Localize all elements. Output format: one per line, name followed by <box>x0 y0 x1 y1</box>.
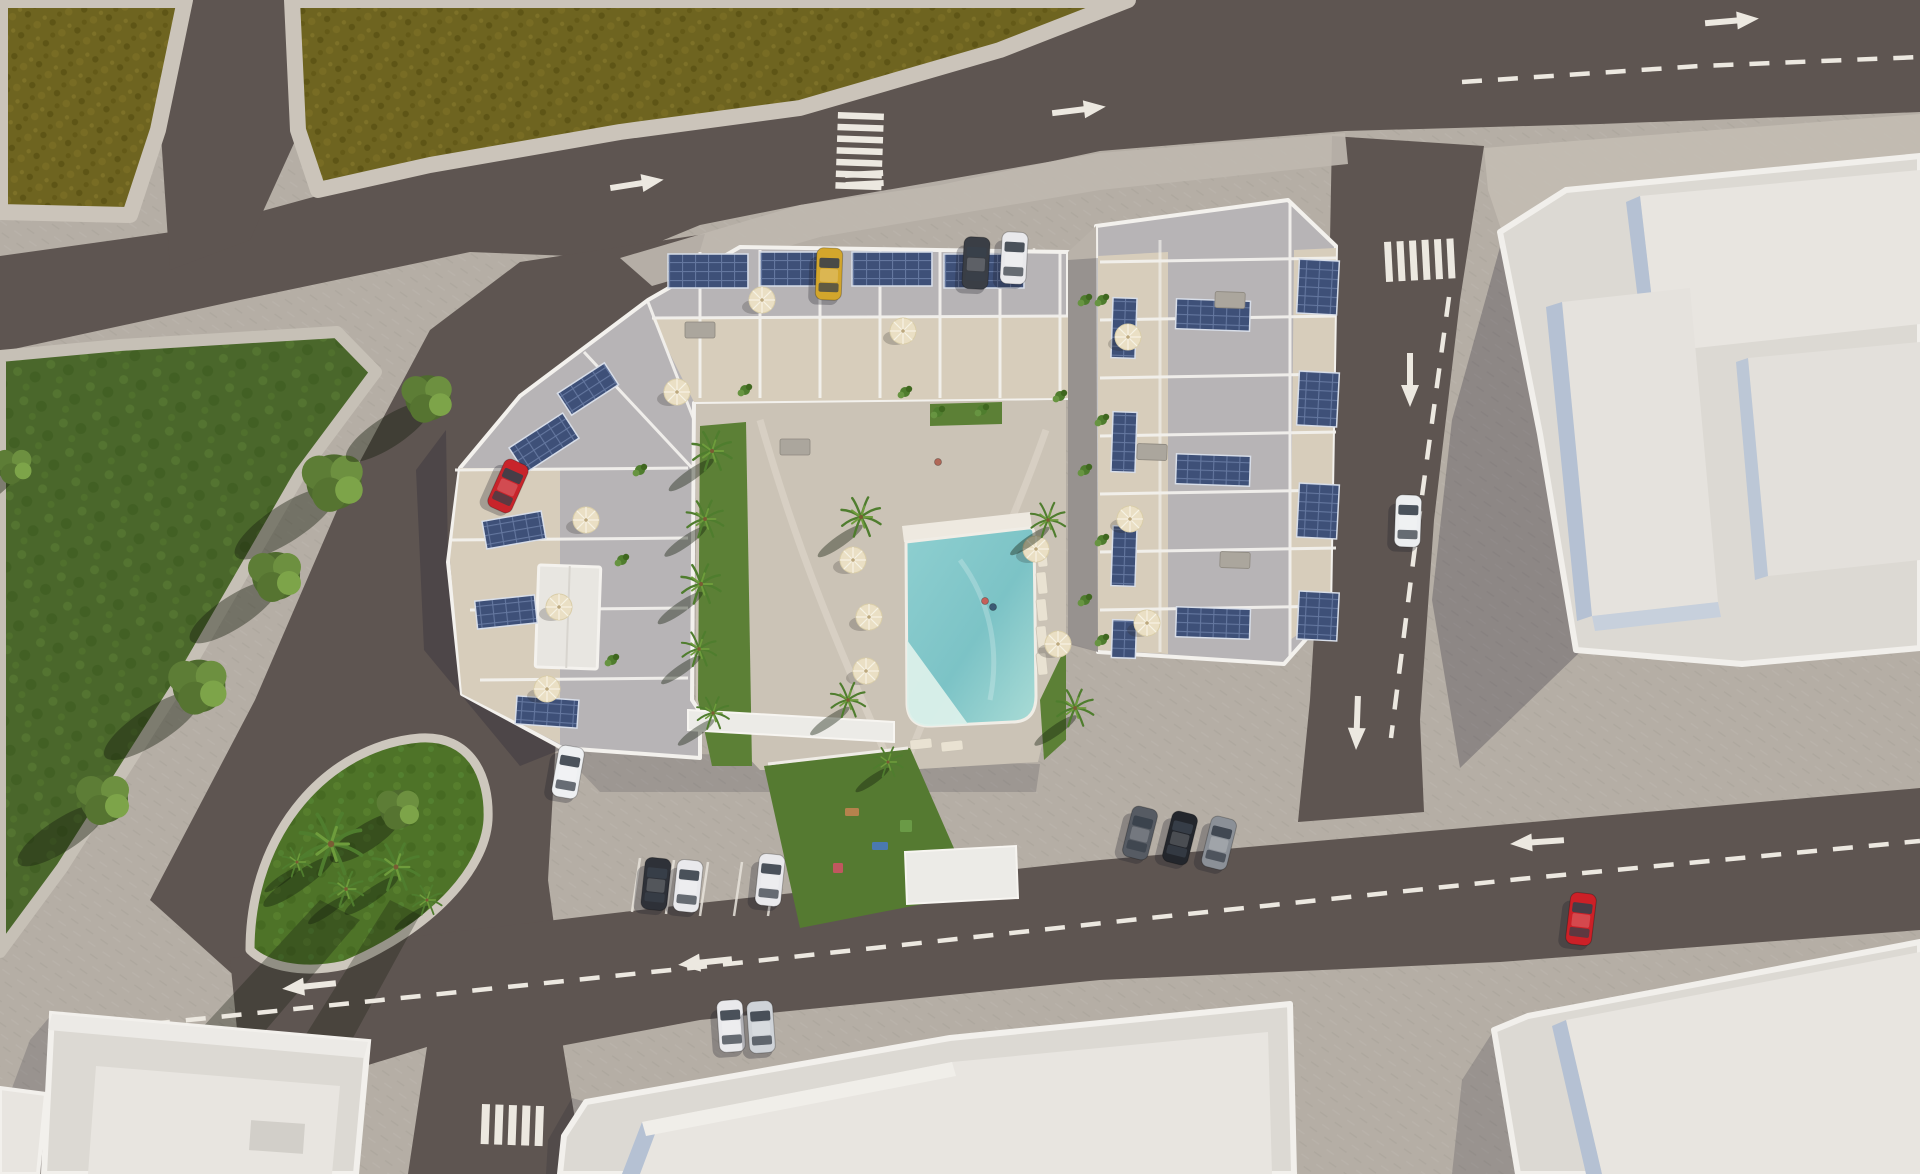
plant-leaf <box>1086 294 1092 300</box>
solar-panel-array <box>1297 483 1340 539</box>
solar-panel-array <box>1111 526 1137 587</box>
solar-panel <box>1175 607 1250 640</box>
car-rear-window <box>1397 530 1417 540</box>
pool-lounger <box>1036 599 1048 622</box>
solar-panel-array <box>1175 607 1250 640</box>
solar-panel <box>475 595 538 629</box>
complex-alley-shadow <box>1068 258 1098 652</box>
plant-leaf <box>1095 420 1102 427</box>
tree-canopy <box>400 805 419 824</box>
lounger <box>1036 599 1048 622</box>
parasol-pole <box>675 390 679 394</box>
solar-panel-array <box>1175 454 1250 487</box>
solar-panel <box>1111 412 1137 473</box>
solar-panel <box>852 252 932 286</box>
car-roof-highlight <box>722 1020 741 1034</box>
person <box>982 598 989 605</box>
car-roof-highlight <box>760 874 779 889</box>
car-windshield <box>761 863 782 875</box>
car-roof-highlight <box>1399 516 1417 530</box>
plant-leaf <box>633 470 640 477</box>
tree-canopy <box>200 681 226 707</box>
car-windshield <box>679 869 700 881</box>
parasol-pole <box>851 558 855 562</box>
plant-leaf <box>1095 540 1102 547</box>
parasol-pole <box>584 518 588 522</box>
plant-leaf <box>975 410 982 417</box>
car-rear-window <box>818 283 838 293</box>
palm-trunk <box>295 860 298 863</box>
palm-trunk <box>425 898 428 901</box>
tree-canopy <box>105 794 129 818</box>
plant-leaf <box>1078 300 1085 307</box>
table-top <box>1215 291 1246 308</box>
plant-leaf <box>623 554 629 560</box>
solar-panel-array <box>475 595 538 629</box>
scene-svg <box>0 0 1920 1174</box>
playground-equipment <box>845 808 859 816</box>
table-top <box>1220 551 1251 568</box>
car-roof-highlight <box>967 258 986 272</box>
solar-panel-array <box>1297 259 1340 315</box>
parasol-pole <box>901 329 905 333</box>
car-roof-highlight <box>1005 253 1024 267</box>
crosswalk-stripe <box>521 1105 530 1145</box>
south-wall-2 <box>905 846 1018 904</box>
patio-table <box>1137 443 1168 460</box>
parasol-pole <box>1034 547 1038 551</box>
plant-leaf <box>1103 294 1109 300</box>
patio-table <box>1220 551 1251 568</box>
plant-leaf <box>1061 390 1067 396</box>
lounger <box>941 740 964 752</box>
car-rear-window <box>965 271 985 281</box>
palm-trunk <box>1046 518 1050 522</box>
patio-table <box>1215 291 1246 308</box>
solar-panel <box>1297 259 1340 315</box>
building-leftcorner <box>0 1088 46 1174</box>
palm-trunk <box>699 582 703 586</box>
palm-trunk <box>846 698 850 702</box>
plant-leaf <box>641 464 647 470</box>
plant-leaf <box>1095 300 1102 307</box>
palm-trunk <box>394 865 399 870</box>
tree-canopy <box>277 571 301 595</box>
playground-equipment <box>872 842 888 850</box>
pool-lounger <box>941 740 964 752</box>
solar-panel <box>1111 526 1137 587</box>
parasol-pole <box>1056 642 1060 646</box>
tree-canopy <box>335 476 363 504</box>
plant-leaf <box>906 386 912 392</box>
solar-panel-array <box>1297 371 1340 427</box>
plant-leaf <box>1078 600 1085 607</box>
palm-trunk <box>703 517 707 521</box>
crosswalk-stripe <box>481 1104 490 1144</box>
parasol-pole <box>760 298 764 302</box>
plant-leaf <box>931 412 938 419</box>
playground-equipment <box>833 863 843 873</box>
table-top <box>1137 443 1168 460</box>
solar-panel-array <box>1297 591 1339 641</box>
palm-trunk <box>328 841 335 848</box>
person <box>935 459 942 466</box>
pool-lounger <box>1036 572 1048 595</box>
plant-leaf <box>1103 634 1109 640</box>
tree-canopy <box>429 393 452 416</box>
car-windshield <box>720 1009 741 1020</box>
car-windshield <box>647 867 668 879</box>
solar-panel <box>1175 454 1250 487</box>
plant-leaf <box>939 406 945 412</box>
plant-leaf <box>983 404 989 410</box>
crosswalk-stripe <box>494 1104 503 1144</box>
playground-equipment <box>900 820 912 832</box>
parasol-pole <box>1126 335 1130 339</box>
car-rear-window <box>752 1035 773 1045</box>
plant-leaf <box>738 390 745 397</box>
plant-leaf <box>1053 396 1060 403</box>
plant-leaf <box>1086 594 1092 600</box>
solar-panel <box>1297 483 1340 539</box>
parasol-pole <box>1128 517 1132 521</box>
car-windshield <box>966 246 986 257</box>
car-windshield <box>1398 505 1418 516</box>
plant-leaf <box>898 392 905 399</box>
parasol-pole <box>557 605 561 609</box>
lounger <box>1036 572 1048 595</box>
plant-leaf <box>746 384 752 390</box>
plant-leaf <box>1086 464 1092 470</box>
plant-leaf <box>1095 640 1102 647</box>
car-roof-highlight <box>1571 913 1590 928</box>
plant-leaf <box>1103 534 1109 540</box>
plant-leaf <box>615 560 622 567</box>
car-windshield <box>1004 241 1024 252</box>
solar-panel <box>668 254 748 288</box>
car-rear-window <box>1003 266 1023 276</box>
palm-trunk <box>711 711 714 714</box>
plant-leaf <box>1103 414 1109 420</box>
palm-trunk <box>1073 706 1077 710</box>
palm-trunk <box>710 449 714 453</box>
table-top <box>685 322 715 338</box>
solar-panel <box>1297 371 1340 427</box>
building-topright-slabC <box>1748 342 1920 576</box>
patio-table <box>685 322 715 338</box>
car-roof-highlight <box>678 880 697 895</box>
parasol-pole <box>864 669 868 673</box>
palm-trunk <box>886 760 889 763</box>
table-top <box>780 439 810 455</box>
person <box>990 604 997 611</box>
solar-panel <box>1297 591 1339 641</box>
patio-table <box>780 439 810 455</box>
car-roof-highlight <box>820 269 838 283</box>
solar-panel-array <box>852 252 932 286</box>
solar-panel-array <box>1111 412 1137 473</box>
pool-lounger <box>910 738 933 750</box>
aerial-render-canvas <box>0 0 1920 1174</box>
plant-leaf <box>1078 470 1085 477</box>
plant-leaf <box>613 654 619 660</box>
car-roof-highlight <box>646 878 665 893</box>
car-roof-highlight <box>752 1021 771 1035</box>
plant-leaf <box>605 660 612 667</box>
parasol-pole <box>867 615 871 619</box>
tree-canopy <box>15 463 32 480</box>
parasol-pole <box>545 687 549 691</box>
car-windshield <box>819 258 839 269</box>
solar-panel-array <box>668 254 748 288</box>
palm-trunk <box>344 887 348 891</box>
palm-trunk <box>859 515 863 519</box>
building-bottomleft-vent <box>249 1120 305 1154</box>
parasol-pole <box>1145 621 1149 625</box>
crosswalk-stripe <box>508 1105 517 1145</box>
lounger <box>910 738 933 750</box>
palm-trunk <box>697 647 701 651</box>
car-rear-window <box>722 1034 743 1044</box>
crosswalk-stripe <box>535 1106 544 1146</box>
car-windshield <box>750 1010 771 1021</box>
